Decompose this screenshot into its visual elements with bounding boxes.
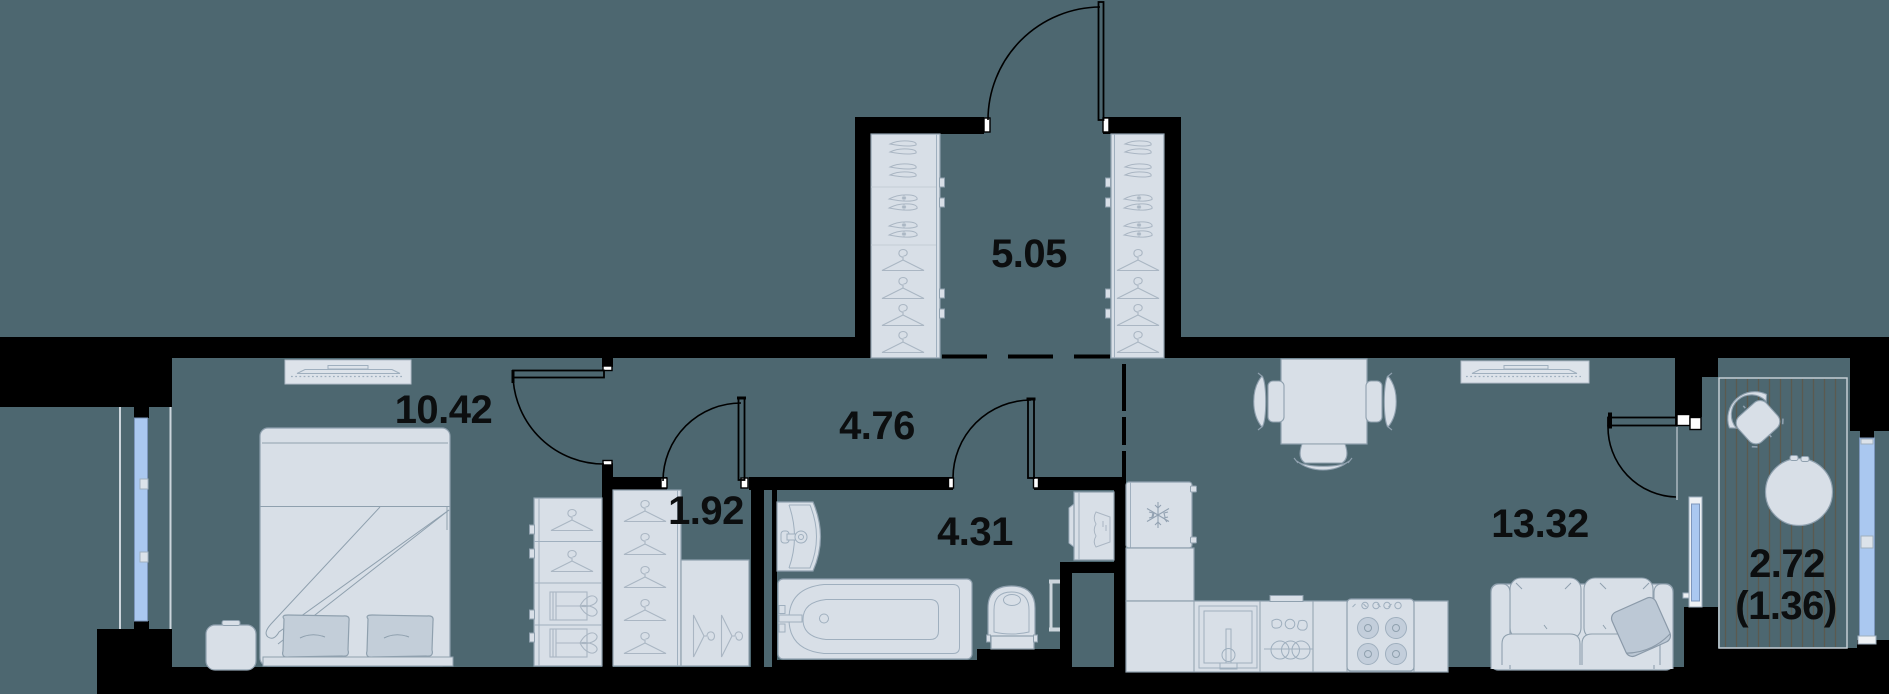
svg-text:4.31: 4.31 xyxy=(937,510,1013,554)
svg-text:13.32: 13.32 xyxy=(1491,502,1589,546)
svg-text:(1.36): (1.36) xyxy=(1735,584,1837,628)
svg-text:5.05: 5.05 xyxy=(991,232,1067,276)
svg-text:10.42: 10.42 xyxy=(395,388,493,432)
svg-text:1.92: 1.92 xyxy=(668,489,744,533)
svg-text:2.72: 2.72 xyxy=(1749,542,1825,586)
svg-text:4.76: 4.76 xyxy=(839,404,915,448)
